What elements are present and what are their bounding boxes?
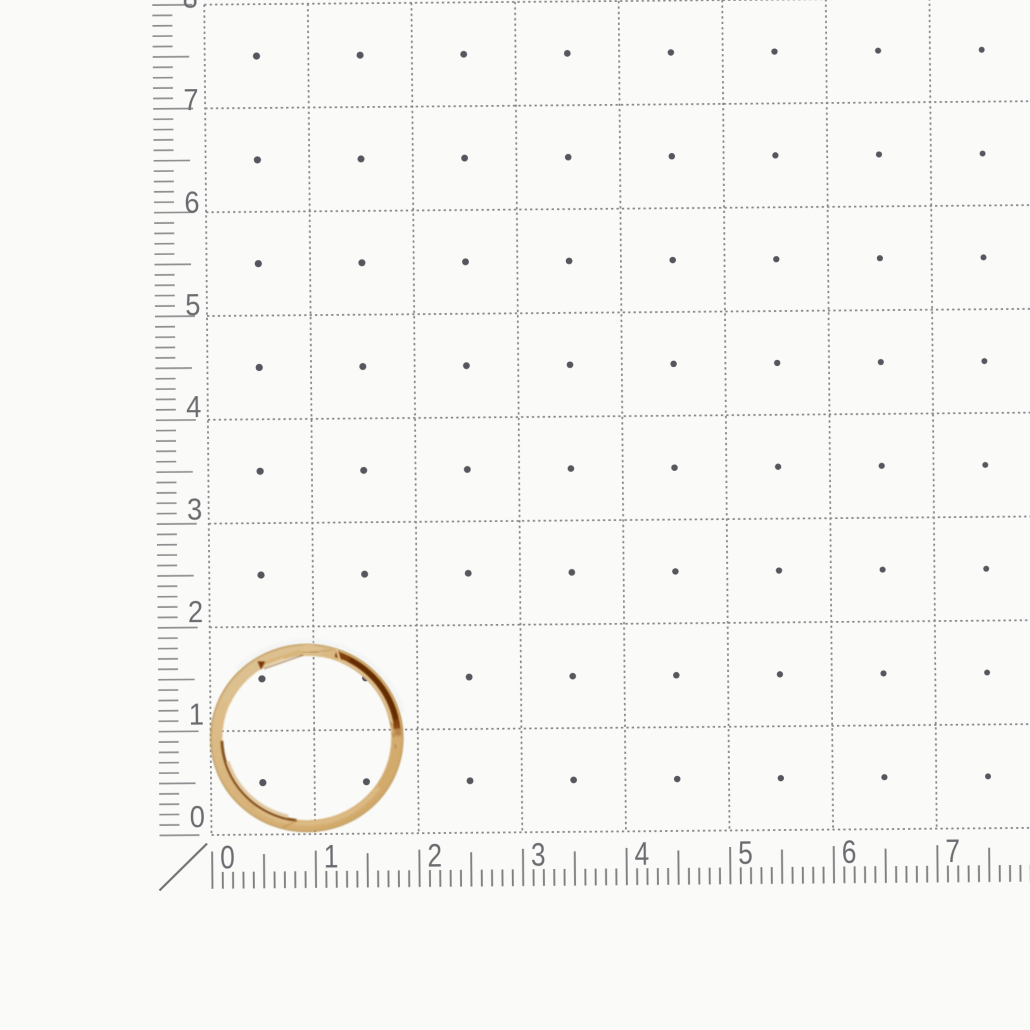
svg-text:5: 5: [185, 288, 200, 322]
svg-text:3: 3: [187, 493, 202, 527]
svg-text:2: 2: [188, 596, 203, 630]
svg-text:1: 1: [324, 840, 339, 875]
svg-text:5: 5: [738, 836, 753, 871]
svg-text:1: 1: [189, 698, 204, 732]
svg-text:4: 4: [186, 391, 201, 425]
svg-text:0: 0: [220, 841, 235, 876]
svg-text:6: 6: [184, 186, 199, 220]
svg-text:3: 3: [531, 838, 546, 873]
svg-text:8: 8: [182, 0, 197, 15]
svg-text:2: 2: [427, 839, 442, 874]
svg-text:6: 6: [842, 836, 857, 871]
svg-text:7: 7: [945, 835, 960, 870]
svg-text:7: 7: [183, 84, 198, 118]
svg-text:4: 4: [634, 837, 649, 872]
svg-text:0: 0: [190, 800, 205, 834]
